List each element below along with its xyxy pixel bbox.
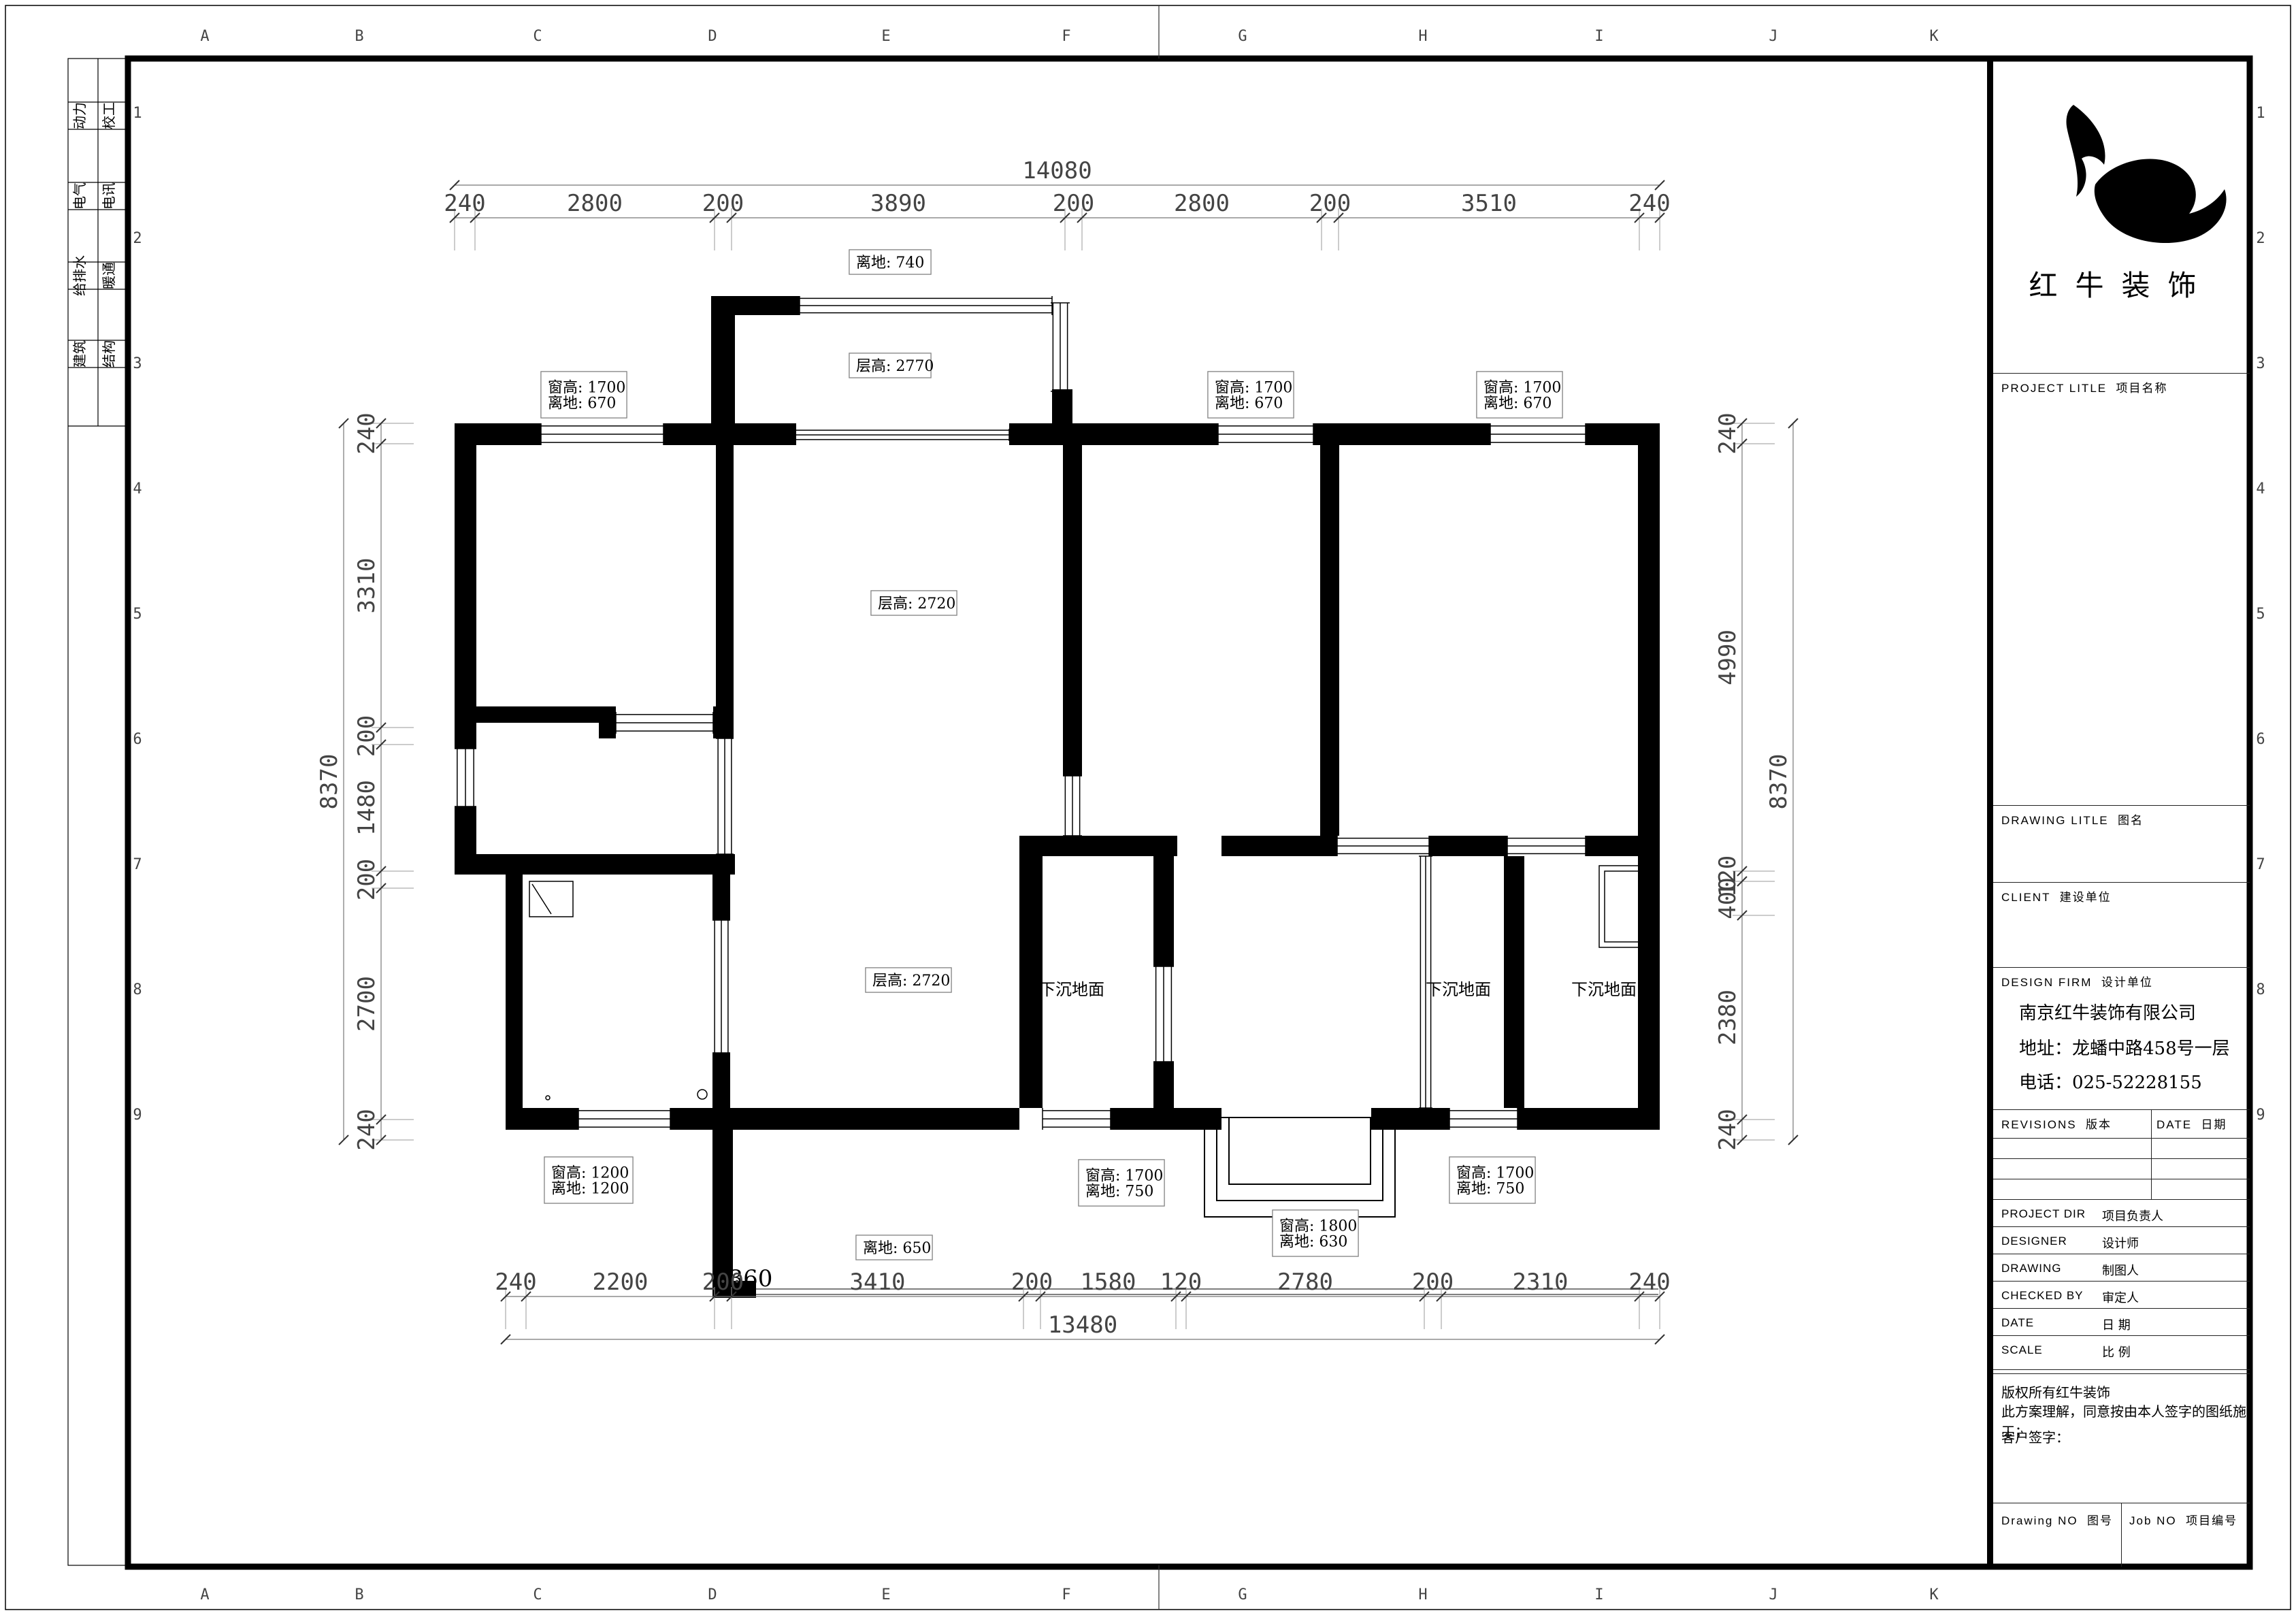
grid-letter-E: E — [881, 28, 890, 45]
annotation-text: 窗高: 1700 — [1456, 1165, 1534, 1182]
dim-overall: 8370 — [1765, 754, 1792, 810]
discipline-3-b: 结构 — [101, 340, 117, 368]
annotation-text: 离地: 670 — [1483, 395, 1552, 412]
wall — [1052, 389, 1072, 445]
revisions-date-label: DATE 日期 — [2156, 1115, 2227, 1132]
wall — [1063, 445, 1082, 776]
wall — [1221, 836, 1337, 856]
wall — [716, 423, 734, 738]
dim-value: 240 — [353, 1109, 380, 1150]
wall — [1504, 856, 1524, 1108]
dim-value: 240 — [1714, 412, 1741, 454]
grid-letter-K: K — [1929, 1586, 1939, 1603]
grid-letter-J: J — [1769, 1586, 1777, 1603]
grid-letter-H: H — [1418, 1586, 1427, 1603]
grid-number-8: 8 — [133, 981, 142, 998]
project-title-label: PROJECT LITLE 项目名称 — [2001, 378, 2168, 395]
dim-value: 240 — [444, 190, 485, 217]
discipline-0-b: 校工 — [101, 102, 117, 129]
bay-window — [1217, 1118, 1383, 1201]
dim-value: 120 — [1160, 1269, 1202, 1296]
wall — [713, 706, 734, 738]
dim-value: 1480 — [353, 780, 380, 836]
wall — [1429, 836, 1507, 856]
field-designer: DESIGNER — [2001, 1235, 2067, 1248]
grid-number-2: 2 — [133, 230, 142, 247]
drawing-sheet: 动力校工电气电讯给排水暖通建筑结构ABCDEFGHIJKABCDEFGHIJK1… — [0, 0, 2296, 1615]
grid-number-9: 9 — [133, 1107, 142, 1124]
company-address: 地址：龙蟠中路458号一层 — [2019, 1034, 2230, 1060]
annotation-text: 窗高: 1200 — [551, 1165, 629, 1182]
plan-text: 下沉地面 — [1039, 980, 1104, 999]
dim-value: 1580 — [1081, 1269, 1136, 1296]
annotation-text: 层高: 2720 — [872, 973, 950, 990]
wall — [455, 854, 735, 875]
discipline-2-a: 给排水 — [71, 255, 88, 296]
grid-number-5: 5 — [2256, 606, 2265, 623]
dim-value: 2200 — [593, 1269, 649, 1296]
field-drawing: DRAWING — [2001, 1262, 2062, 1275]
grid-letter-B: B — [355, 1586, 363, 1603]
grid-number-5: 5 — [133, 606, 142, 623]
drawing-title-label: DRAWING LITLE 图名 — [2001, 811, 2144, 828]
annotation-text: 离地: 750 — [1085, 1183, 1153, 1200]
annotation-text: 离地: 670 — [548, 395, 616, 412]
dim-value: 2780 — [1277, 1269, 1333, 1296]
discipline-0-a: 动力 — [71, 102, 88, 129]
wall — [455, 423, 476, 749]
grid-number-9: 9 — [2256, 1107, 2265, 1124]
grid-letter-G: G — [1238, 1586, 1247, 1603]
company-phone: 电话：025-52228155 — [2019, 1068, 2202, 1094]
field-date: DATE — [2001, 1316, 2034, 1330]
field-scale: SCALE — [2001, 1343, 2043, 1357]
grid-letter-J: J — [1769, 28, 1777, 45]
grid-number-6: 6 — [2256, 731, 2265, 748]
sheet-inner-frame — [128, 59, 2250, 1567]
wall — [712, 1053, 730, 1130]
grid-letter-A: A — [200, 28, 209, 45]
discipline-3-a: 建筑 — [71, 340, 88, 368]
grid-letter-F: F — [1062, 28, 1070, 45]
annotation-text: 窗高: 1700 — [548, 380, 625, 397]
annotation-text: 窗高: 1700 — [1085, 1168, 1163, 1185]
job-no-label: Job NO 项目编号 — [2129, 1511, 2237, 1528]
wall — [506, 1108, 578, 1130]
grid-letter-C: C — [533, 1586, 542, 1603]
dim-value: 200 — [353, 859, 380, 900]
annotation-text: 层高: 2770 — [856, 358, 934, 375]
client-label: CLIENT 建设单位 — [2001, 887, 2112, 904]
wall — [1153, 856, 1174, 966]
annotation-text: 离地: 1200 — [551, 1180, 629, 1197]
dim-value: 200 — [1309, 190, 1351, 217]
dim-value: 3510 — [1461, 190, 1517, 217]
grid-number-1: 1 — [2256, 105, 2265, 122]
dim-value: 240 — [1714, 1109, 1741, 1150]
revisions-label: REVISIONS 版本 — [2001, 1115, 2112, 1132]
dim-value: 3890 — [870, 190, 926, 217]
grid-number-3: 3 — [133, 355, 142, 372]
dim-value: 2800 — [567, 190, 623, 217]
wall — [712, 875, 730, 920]
dim-value: 240 — [353, 412, 380, 454]
wall — [506, 875, 523, 1109]
grid-number-7: 7 — [133, 856, 142, 873]
grid-number-4: 4 — [133, 480, 142, 497]
grid-letter-I: I — [1594, 1586, 1603, 1603]
wall — [733, 1108, 1019, 1130]
annotation-text: 窗高: 1800 — [1279, 1218, 1357, 1235]
brand-name: 红牛装饰 — [1993, 263, 2250, 304]
annotation-text: 窗高: 1700 — [1215, 380, 1292, 397]
wall — [1320, 445, 1339, 836]
field-checked-by: CHECKED BY — [2001, 1289, 2084, 1303]
dim-value: 240 — [495, 1269, 536, 1296]
discipline-1-b: 电讯 — [101, 182, 117, 210]
dim-value: 240 — [1628, 1269, 1670, 1296]
dim-value: 2700 — [353, 976, 380, 1032]
grid-letter-I: I — [1594, 28, 1603, 45]
grid-letter-A: A — [200, 1586, 209, 1603]
dim-value: 200 — [353, 715, 380, 757]
drawing-no-label: Drawing NO 图号 — [2001, 1511, 2113, 1528]
discipline-2-b: 暖通 — [101, 262, 117, 289]
annotation-text: 层高: 2720 — [878, 596, 955, 613]
wall — [1009, 423, 1218, 445]
dim-value: 3410 — [850, 1269, 906, 1296]
company-name: 南京红牛装饰有限公司 — [2019, 999, 2196, 1024]
sheet-outer-border — [5, 5, 2291, 1610]
field-project-dir: PROJECT DIR — [2001, 1207, 2086, 1221]
grid-letter-G: G — [1238, 28, 1247, 45]
grid-letter-E: E — [881, 1586, 890, 1603]
client-signature-label: 客户签字： — [2001, 1426, 2069, 1446]
wall — [1019, 836, 1177, 856]
wall — [599, 706, 616, 738]
dim-value: 240 — [1628, 190, 1670, 217]
wall — [1638, 423, 1660, 1130]
dim-overall: 14080 — [1022, 157, 1092, 184]
dim-value: 2800 — [1174, 190, 1230, 217]
discipline-1-a: 电气 — [71, 182, 88, 210]
wall — [476, 706, 612, 723]
door-circle — [698, 1090, 707, 1099]
grid-letter-F: F — [1062, 1586, 1070, 1603]
grid-letter-B: B — [355, 28, 363, 45]
dim-overall: 8370 — [316, 754, 343, 810]
dim-value: 4990 — [1714, 630, 1741, 685]
fixture-diagonal — [532, 884, 551, 914]
dim-value: 200 — [702, 1269, 744, 1296]
dim-value: 200 — [1412, 1269, 1454, 1296]
grid-number-4: 4 — [2256, 480, 2265, 497]
plan-text: 下沉地面 — [1426, 980, 1491, 999]
bay-window — [1204, 1118, 1395, 1217]
grid-letter-H: H — [1418, 28, 1427, 45]
plan-text: 下沉地面 — [1571, 980, 1637, 999]
wall — [1313, 423, 1490, 445]
annotation-text: 离地: 750 — [1456, 1180, 1524, 1197]
bay-window — [1229, 1118, 1371, 1184]
grid-number-6: 6 — [133, 731, 142, 748]
grid-number-8: 8 — [2256, 981, 2265, 998]
dim-value: 200 — [702, 190, 744, 217]
dim-value: 200 — [1053, 190, 1094, 217]
dim-value: 2310 — [1513, 1269, 1569, 1296]
door-circle — [546, 1096, 550, 1100]
dim-value: 200 — [1011, 1269, 1053, 1296]
floor-plan-canvas: 动力校工电气电讯给排水暖通建筑结构ABCDEFGHIJKABCDEFGHIJK1… — [0, 0, 2296, 1615]
wall — [711, 296, 735, 445]
wall — [711, 296, 800, 315]
grid-number-1: 1 — [133, 105, 142, 122]
annotation-text: 离地: 740 — [856, 255, 924, 272]
grid-letter-D: D — [708, 1586, 717, 1603]
grid-letter-K: K — [1929, 28, 1939, 45]
annotation-text: 离地: 630 — [1279, 1233, 1347, 1250]
fixture — [529, 881, 573, 917]
annotation-text: 离地: 670 — [1215, 395, 1283, 412]
design-firm-label: DESIGN FIRM 设计单位 — [2001, 973, 2153, 990]
copyright-line-1: 版权所有红牛装饰 — [2001, 1382, 2110, 1401]
annotation-text: 离地: 650 — [863, 1240, 931, 1257]
grid-number-3: 3 — [2256, 355, 2265, 372]
grid-letter-D: D — [708, 28, 717, 45]
dim-value: 400 — [1714, 877, 1741, 919]
title-block: 红牛装饰 PROJECT LITLE 项目名称 DRAWING LITLE 图名… — [1987, 59, 2250, 1567]
grid-number-7: 7 — [2256, 856, 2265, 873]
dim-value: 3310 — [353, 558, 380, 614]
wall — [1153, 1062, 1174, 1108]
dim-overall: 13480 — [1048, 1311, 1117, 1339]
dim-value: 2380 — [1714, 990, 1741, 1045]
grid-letter-C: C — [533, 28, 542, 45]
grid-number-2: 2 — [2256, 230, 2265, 247]
annotation-text: 窗高: 1700 — [1483, 380, 1561, 397]
